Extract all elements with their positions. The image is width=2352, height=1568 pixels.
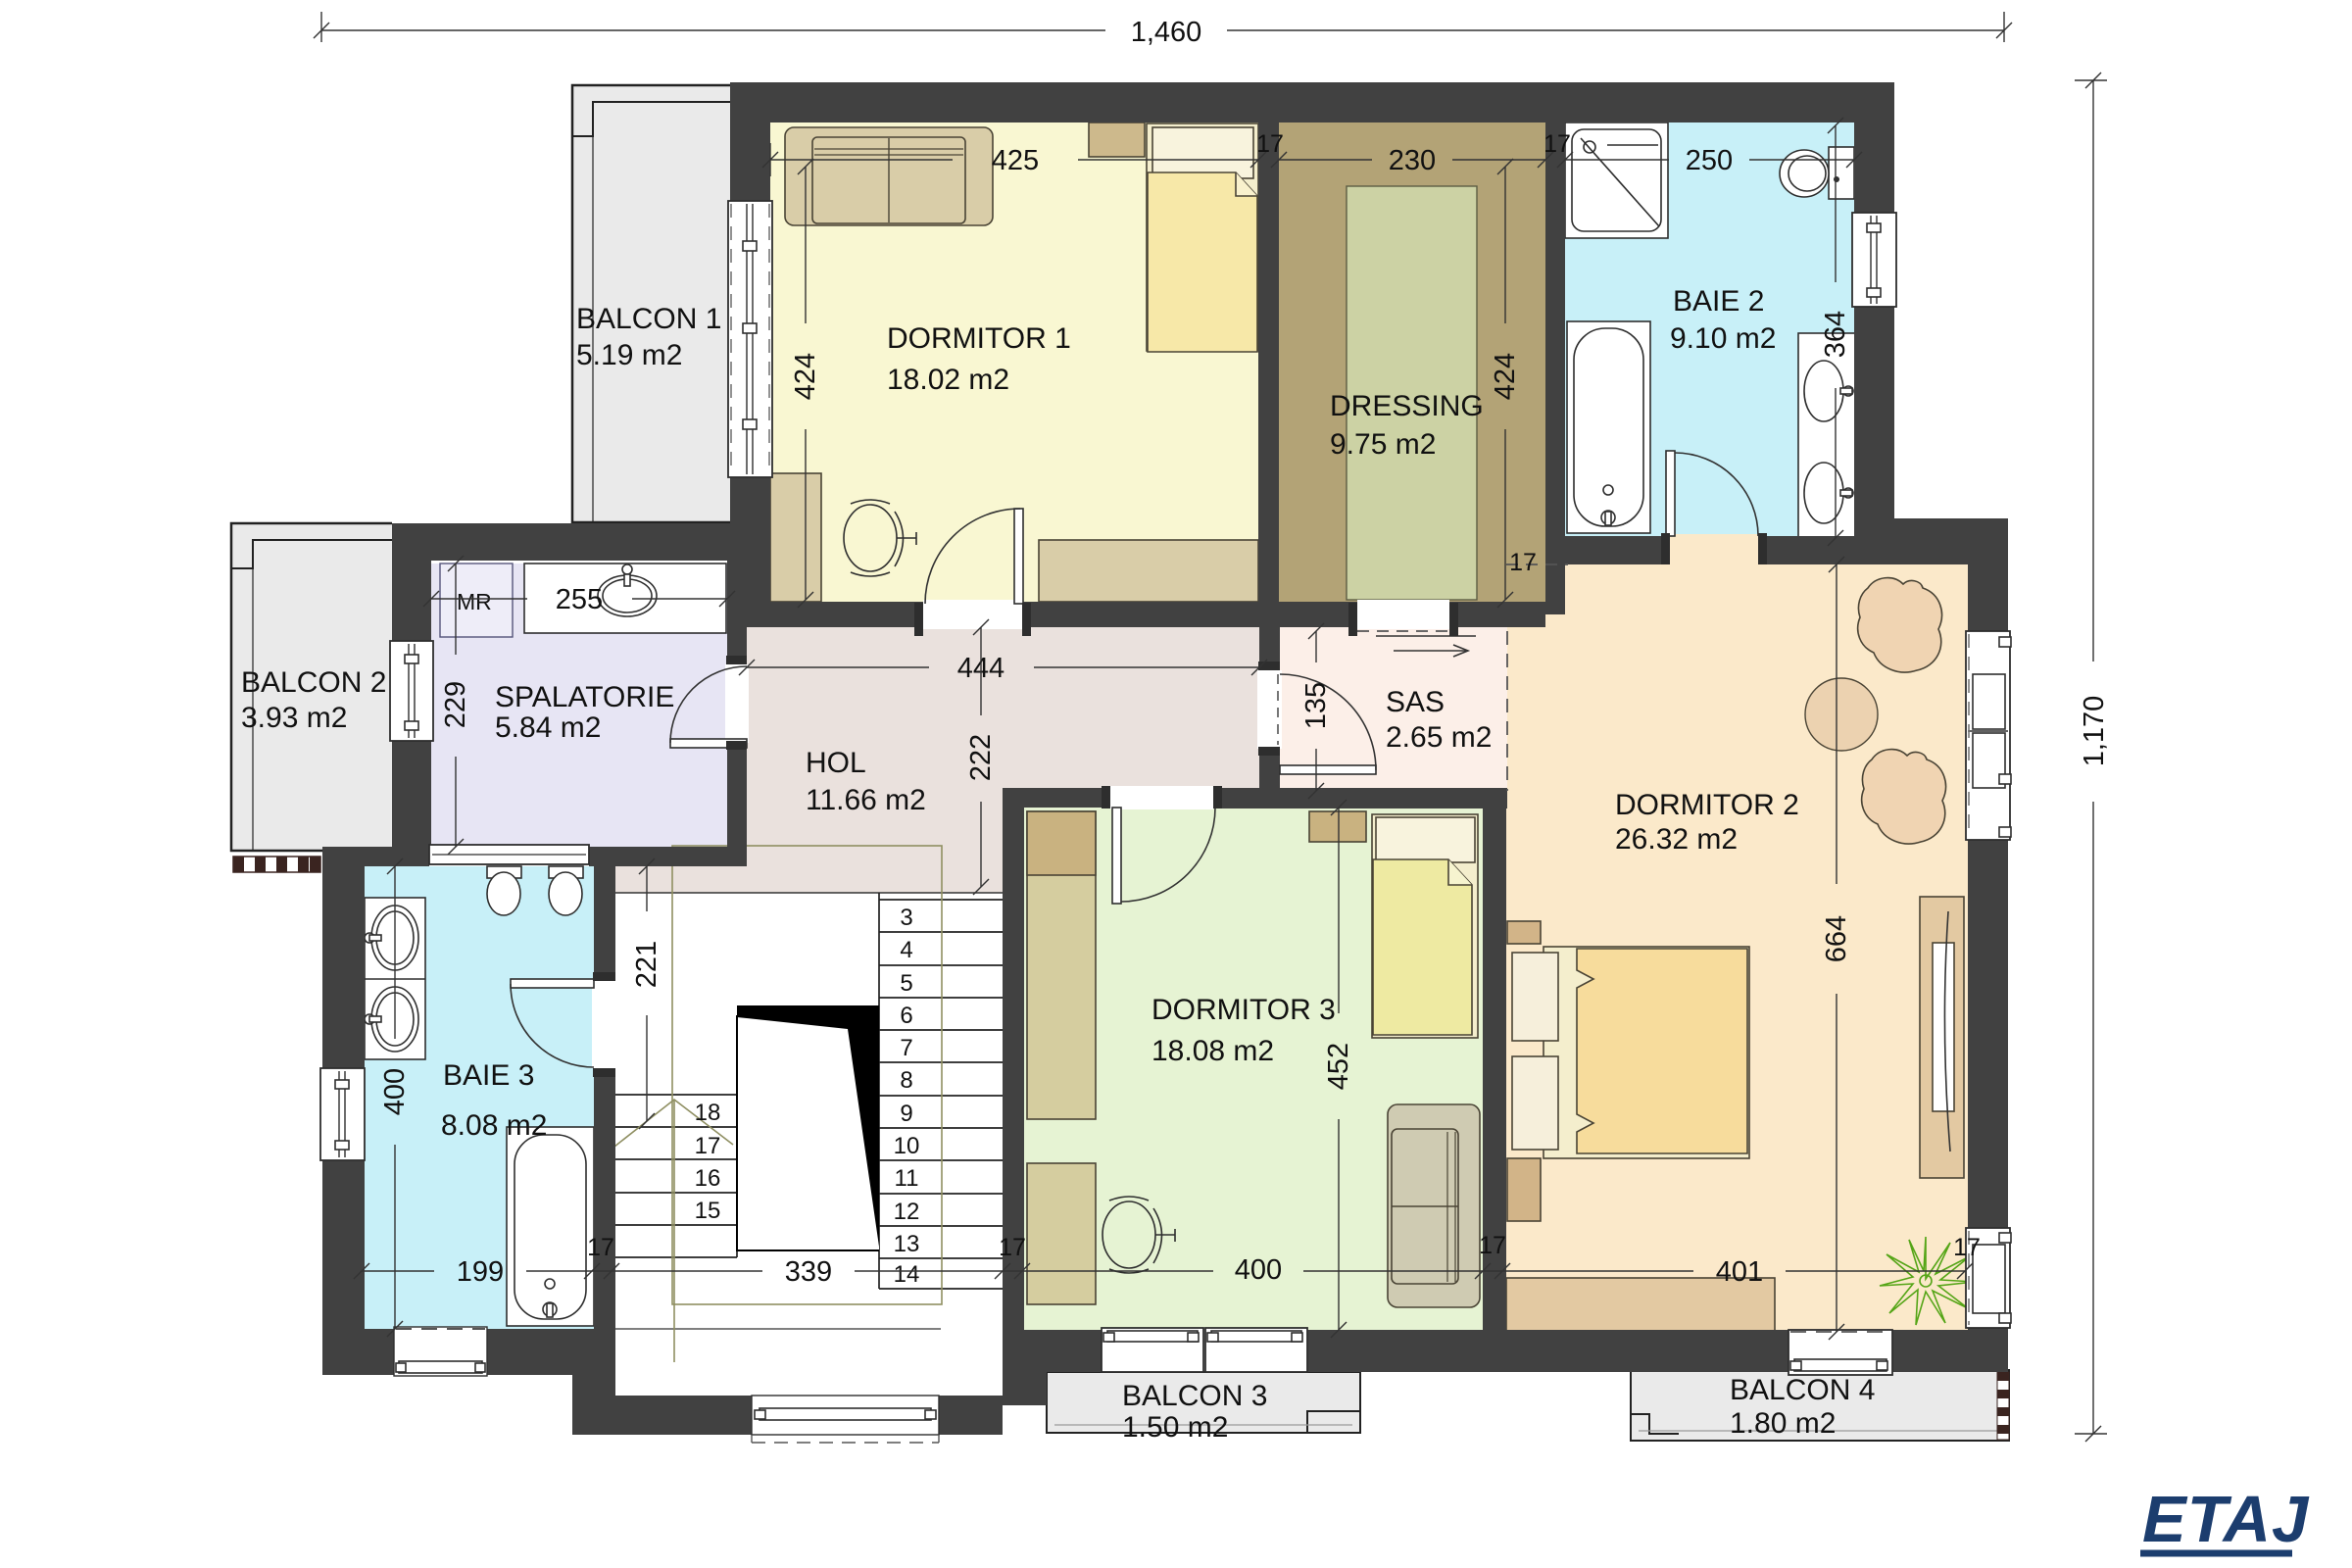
svg-text:ETAJ: ETAJ [2142,1483,2310,1556]
svg-text:26.32 m2: 26.32 m2 [1615,823,1738,856]
svg-text:1.80 m2: 1.80 m2 [1730,1407,1836,1440]
svg-text:11: 11 [895,1165,919,1192]
svg-text:DORMITOR 3: DORMITOR 3 [1151,994,1336,1026]
svg-text:8: 8 [900,1067,912,1094]
svg-text:DRESSING: DRESSING [1330,390,1484,422]
svg-text:17: 17 [1509,549,1537,576]
svg-text:SAS: SAS [1386,686,1445,718]
svg-text:5.84 m2: 5.84 m2 [495,711,601,744]
svg-text:BALCON 2: BALCON 2 [241,666,386,699]
svg-text:5: 5 [900,970,912,997]
svg-text:BALCON 3: BALCON 3 [1122,1380,1267,1412]
svg-text:12: 12 [894,1199,920,1225]
svg-text:4: 4 [900,937,912,963]
svg-text:13: 13 [894,1231,920,1257]
svg-text:5.19 m2: 5.19 m2 [576,339,682,371]
svg-text:16: 16 [695,1165,721,1192]
svg-text:HOL: HOL [806,747,866,779]
svg-text:17: 17 [999,1234,1026,1261]
svg-text:14: 14 [894,1261,920,1288]
svg-text:452: 452 [1323,1043,1354,1090]
svg-text:1,170: 1,170 [2079,696,2110,767]
svg-text:1.50 m2: 1.50 m2 [1122,1411,1228,1444]
svg-text:339: 339 [785,1256,832,1288]
svg-text:250: 250 [1686,145,1733,176]
svg-text:229: 229 [440,681,471,728]
svg-text:17: 17 [1256,130,1284,158]
svg-text:424: 424 [1490,353,1521,400]
svg-text:17: 17 [695,1133,721,1159]
svg-text:221: 221 [631,941,662,988]
svg-text:8.08 m2: 8.08 m2 [441,1109,547,1142]
svg-text:17: 17 [1953,1234,1981,1261]
svg-text:DORMITOR 1: DORMITOR 1 [887,322,1071,355]
svg-text:18.08 m2: 18.08 m2 [1151,1035,1274,1067]
svg-text:9: 9 [900,1101,912,1127]
svg-text:400: 400 [1235,1254,1282,1286]
svg-text:3: 3 [900,905,912,931]
svg-text:2.65 m2: 2.65 m2 [1386,721,1492,754]
svg-text:17: 17 [587,1234,614,1261]
svg-text:425: 425 [992,145,1039,176]
svg-text:1,460: 1,460 [1131,17,1202,48]
svg-text:9.10 m2: 9.10 m2 [1670,322,1776,355]
svg-text:135: 135 [1300,682,1332,729]
svg-text:364: 364 [1820,311,1851,358]
svg-text:401: 401 [1716,1256,1763,1288]
svg-text:BAIE 2: BAIE 2 [1673,285,1764,318]
svg-text:400: 400 [379,1068,411,1115]
svg-text:222: 222 [965,734,997,781]
svg-text:6: 6 [900,1003,912,1029]
svg-text:11.66 m2: 11.66 m2 [806,784,926,816]
svg-text:BALCON 4: BALCON 4 [1730,1374,1875,1406]
svg-text:17: 17 [1543,130,1571,158]
svg-text:BAIE 3: BAIE 3 [443,1059,534,1092]
svg-text:17: 17 [1479,1232,1506,1259]
svg-text:MR: MR [457,589,492,614]
svg-text:664: 664 [1821,915,1852,962]
svg-text:255: 255 [556,584,603,615]
svg-text:9.75 m2: 9.75 m2 [1330,428,1436,461]
svg-text:230: 230 [1389,145,1436,176]
svg-text:18.02 m2: 18.02 m2 [887,364,1009,396]
svg-text:DORMITOR 2: DORMITOR 2 [1615,789,1799,821]
svg-text:18: 18 [695,1100,721,1126]
svg-text:BALCON 1: BALCON 1 [576,303,721,335]
svg-text:3.93 m2: 3.93 m2 [241,702,347,734]
svg-text:15: 15 [695,1198,721,1224]
svg-text:424: 424 [790,353,821,400]
svg-text:199: 199 [457,1256,504,1288]
svg-text:7: 7 [900,1035,912,1061]
svg-text:10: 10 [894,1133,920,1159]
svg-text:SPALATORIE: SPALATORIE [495,681,674,713]
